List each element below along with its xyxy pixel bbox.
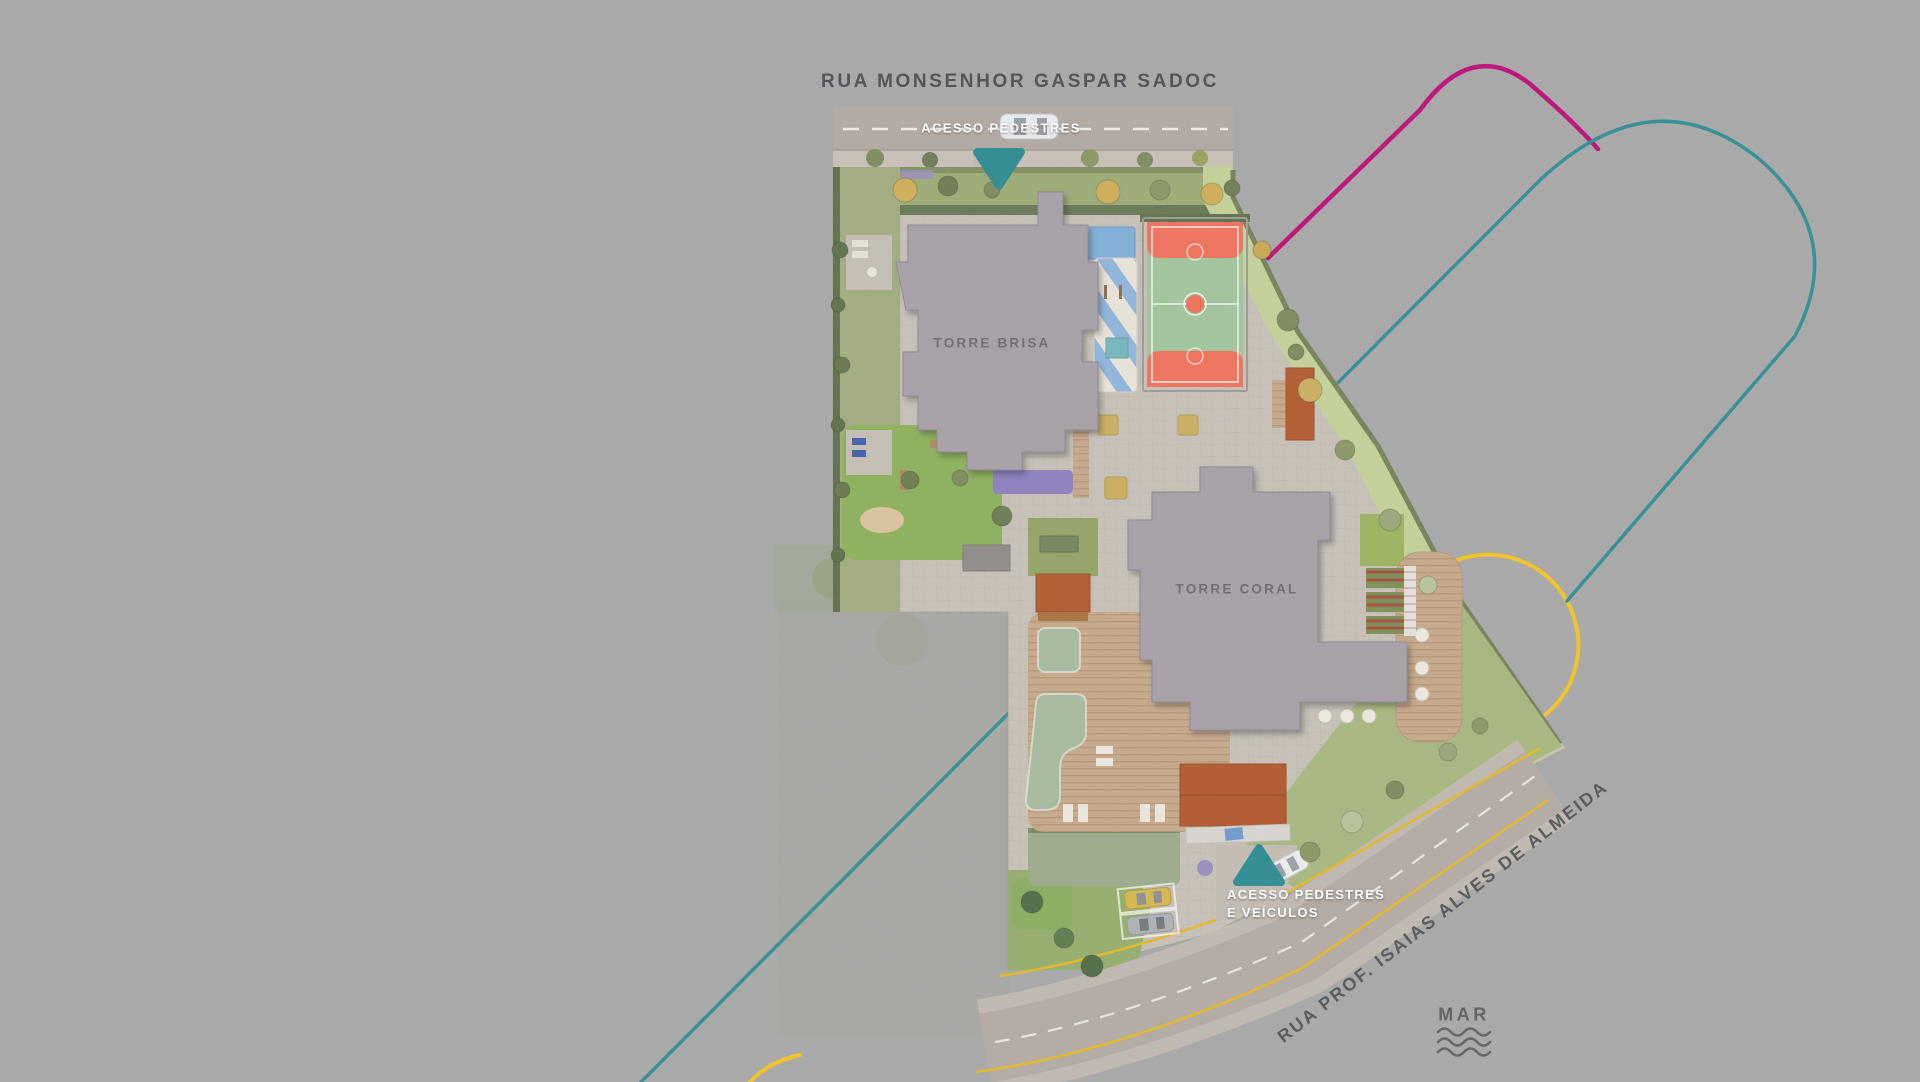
access-vehicle-label: ACESSO PEDESTRES E VEÍCULOS [1227, 886, 1385, 922]
tower-brisa-label: TORRE BRISA [934, 336, 1051, 351]
site-plan-canvas: RUA MONSENHOR GASPAR SADOC ACESSO PEDEST… [0, 0, 1920, 1082]
access-vehicle-label-line2: E VEÍCULOS [1227, 904, 1385, 922]
access-pedestrian-label: ACESSO PEDESTRES [921, 121, 1081, 136]
sea-label: MAR [1438, 1005, 1490, 1026]
access-vehicle-label-line1: ACESSO PEDESTRES [1227, 886, 1385, 904]
street-name-top: RUA MONSENHOR GASPAR SADOC [821, 71, 1219, 93]
grain-overlay [0, 0, 1920, 1082]
tower-coral-label: TORRE CORAL [1176, 582, 1299, 597]
masterplan-graphic [0, 0, 1920, 1082]
